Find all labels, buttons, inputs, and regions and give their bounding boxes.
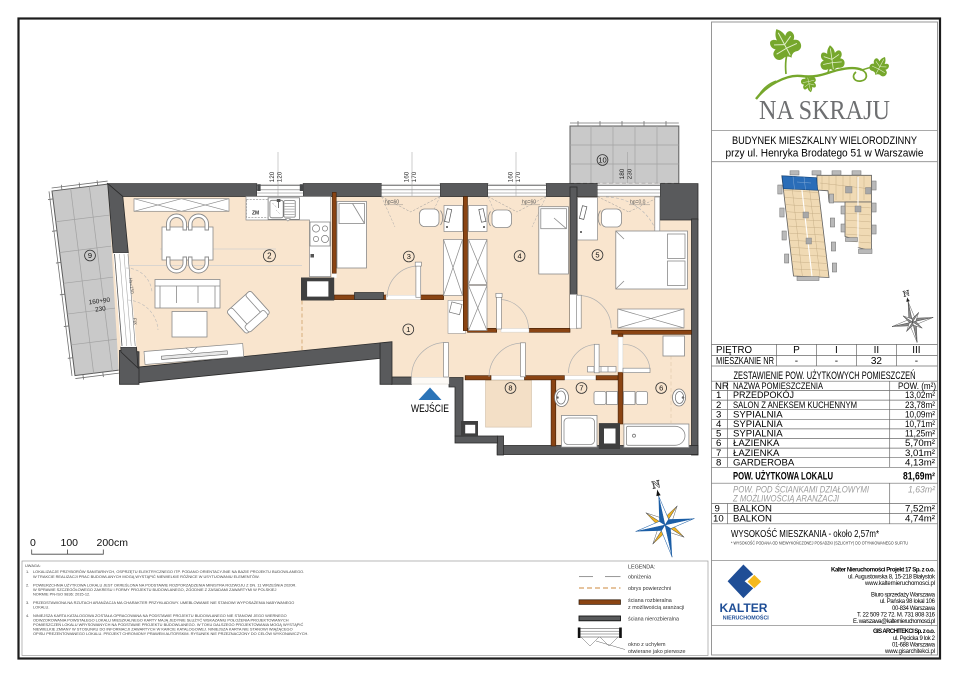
- svg-text:-: -: [795, 356, 798, 367]
- svg-text:II: II: [874, 345, 880, 356]
- svg-text:otwierane jako pierwsze: otwierane jako pierwsze: [628, 649, 686, 655]
- svg-text:UWAGA:: UWAGA:: [25, 563, 41, 568]
- svg-text:z możliwością aranżacji: z możliwością aranżacji: [628, 605, 684, 611]
- svg-text:MIESZKANIE NR: MIESZKANIE NR: [716, 356, 774, 367]
- svg-text:01-688 Warszawa: 01-688 Warszawa: [892, 643, 936, 649]
- svg-text:ściana nierozbieralna: ściana nierozbieralna: [628, 616, 679, 622]
- svg-text:KALTER: KALTER: [720, 601, 768, 615]
- svg-text:3: 3: [407, 252, 411, 261]
- svg-text:8: 8: [716, 457, 721, 468]
- svg-text:230: 230: [95, 305, 107, 313]
- svg-text:00-834 Warszawa: 00-834 Warszawa: [892, 606, 936, 612]
- svg-text:P: P: [793, 345, 800, 356]
- svg-text:GARDEROBA: GARDEROBA: [733, 457, 795, 468]
- svg-text:4.: 4.: [26, 613, 29, 618]
- svg-text:180: 180: [619, 168, 626, 179]
- svg-text:W TRAKCIE REALIZACJI PRAC BUDO: W TRAKCIE REALIZACJI PRAC BUDOWLANYCH MO…: [33, 574, 260, 579]
- svg-text:PIĘTRO: PIĘTRO: [716, 345, 752, 356]
- svg-text:I: I: [835, 345, 838, 356]
- svg-text:120: 120: [269, 171, 276, 182]
- svg-text:NORMIE PN-ISO 9836: 2015-12.: NORMIE PN-ISO 9836: 2015-12.: [33, 592, 90, 597]
- svg-text:7: 7: [579, 384, 583, 393]
- svg-text:2.: 2.: [26, 583, 29, 588]
- svg-text:2: 2: [267, 252, 272, 261]
- svg-text:obniżenia: obniżenia: [628, 575, 651, 581]
- svg-text:T. 22 509 72 72. M. 731 808 31: T. 22 509 72 72. M. 731 808 316: [857, 612, 936, 618]
- svg-text:POW. UŻYTKOWA LOKALU: POW. UŻYTKOWA LOKALU: [733, 470, 833, 483]
- svg-text:Biuro sprzedaży Warszawa: Biuro sprzedaży Warszawa: [871, 593, 936, 599]
- svg-text:ul. Augustowska 8, 15-218 Biał: ul. Augustowska 8, 15-218 Białystok: [848, 574, 936, 580]
- svg-text:www.kalternieruchomosci.pl: www.kalternieruchomosci.pl: [864, 581, 935, 587]
- svg-text:ściana rozbieralna: ściana rozbieralna: [628, 598, 672, 604]
- svg-text:FIX: FIX: [132, 318, 138, 326]
- svg-text:9: 9: [88, 251, 92, 260]
- svg-text:10: 10: [598, 156, 606, 165]
- svg-text:8: 8: [508, 384, 512, 393]
- svg-text:ul. Pańska 98 lokal 106: ul. Pańska 98 lokal 106: [880, 599, 936, 605]
- svg-text:GIS ARCHITEKCI Sp. z o.o.: GIS ARCHITEKCI Sp. z o.o.: [873, 629, 935, 635]
- svg-text:BALKON: BALKON: [733, 514, 772, 525]
- svg-text:1.: 1.: [26, 569, 29, 574]
- svg-text:WYSOKOŚĆ MIESZKANIA - około 2,: WYSOKOŚĆ MIESZKANIA - około 2,57m*: [731, 527, 879, 540]
- svg-text:WEJŚCIE: WEJŚCIE: [411, 402, 449, 415]
- svg-text:3.: 3.: [26, 600, 29, 605]
- svg-text:10: 10: [713, 514, 724, 525]
- svg-text:81,69m²: 81,69m²: [903, 471, 935, 483]
- svg-text:4,13m²: 4,13m²: [905, 457, 936, 468]
- svg-text:160: 160: [404, 171, 411, 182]
- svg-text:160: 160: [508, 171, 515, 182]
- svg-text:ul. Pęcicka 9 lok 2: ul. Pęcicka 9 lok 2: [893, 636, 936, 642]
- svg-text:NA SKRAJU: NA SKRAJU: [759, 95, 890, 125]
- svg-text:obrys powierzchni: obrys powierzchni: [628, 586, 671, 592]
- svg-text:przy ul. Henryka Brodatego 51: przy ul. Henryka Brodatego 51 w Warszawi…: [726, 148, 924, 160]
- svg-text:Kalter Nieruchomości Projekt 1: Kalter Nieruchomości Projekt 17 Sp. z o.…: [831, 568, 935, 574]
- svg-text:PRZEDSTAWIONA NA RZUTACH ARANŻ: PRZEDSTAWIONA NA RZUTACH ARANŻACJA MA CH…: [33, 600, 294, 605]
- svg-text:LEGENDA:: LEGENDA:: [628, 565, 655, 571]
- svg-text:200cm: 200cm: [97, 537, 129, 549]
- svg-text:-: -: [915, 356, 918, 367]
- svg-text:NIERUCHOMOŚCI: NIERUCHOMOŚCI: [723, 615, 769, 622]
- svg-text:LOKALU.: LOKALU.: [33, 605, 49, 610]
- svg-text:ZM: ZM: [252, 211, 259, 217]
- svg-text:BUDYNEK MIESZKALNY WIELORODZIN: BUDYNEK MIESZKALNY WIELORODZINNY: [732, 135, 917, 147]
- svg-text:1,63m²: 1,63m²: [908, 485, 936, 496]
- svg-text:www.gisarchitekci.pl: www.gisarchitekci.pl: [884, 649, 935, 655]
- svg-text:100: 100: [61, 537, 79, 549]
- svg-text:0: 0: [30, 537, 36, 549]
- svg-text:okno z uchyłem: okno z uchyłem: [628, 642, 666, 648]
- svg-text:32: 32: [871, 356, 883, 367]
- svg-text:120: 120: [277, 171, 284, 182]
- svg-text:-: -: [835, 356, 838, 367]
- svg-text:E. warszawa@kalternieruchomosc: E. warszawa@kalternieruchomosci.pl: [853, 619, 935, 625]
- svg-text:1: 1: [406, 325, 410, 334]
- svg-text:6: 6: [659, 384, 663, 393]
- svg-text:4: 4: [518, 252, 522, 261]
- svg-text:OPISU PREZENTOWANEGO LOKALU. P: OPISU PREZENTOWANEGO LOKALU. PROJEKT CHR…: [33, 631, 308, 636]
- svg-text:4,74m²: 4,74m²: [905, 514, 936, 525]
- svg-text:5: 5: [595, 251, 599, 260]
- svg-text:* WYSOKOŚĆ PODANA OD NIEWYKOŃC: * WYSOKOŚĆ PODANA OD NIEWYKOŃCZONEJ POSA…: [731, 541, 908, 546]
- svg-text:III: III: [912, 345, 920, 356]
